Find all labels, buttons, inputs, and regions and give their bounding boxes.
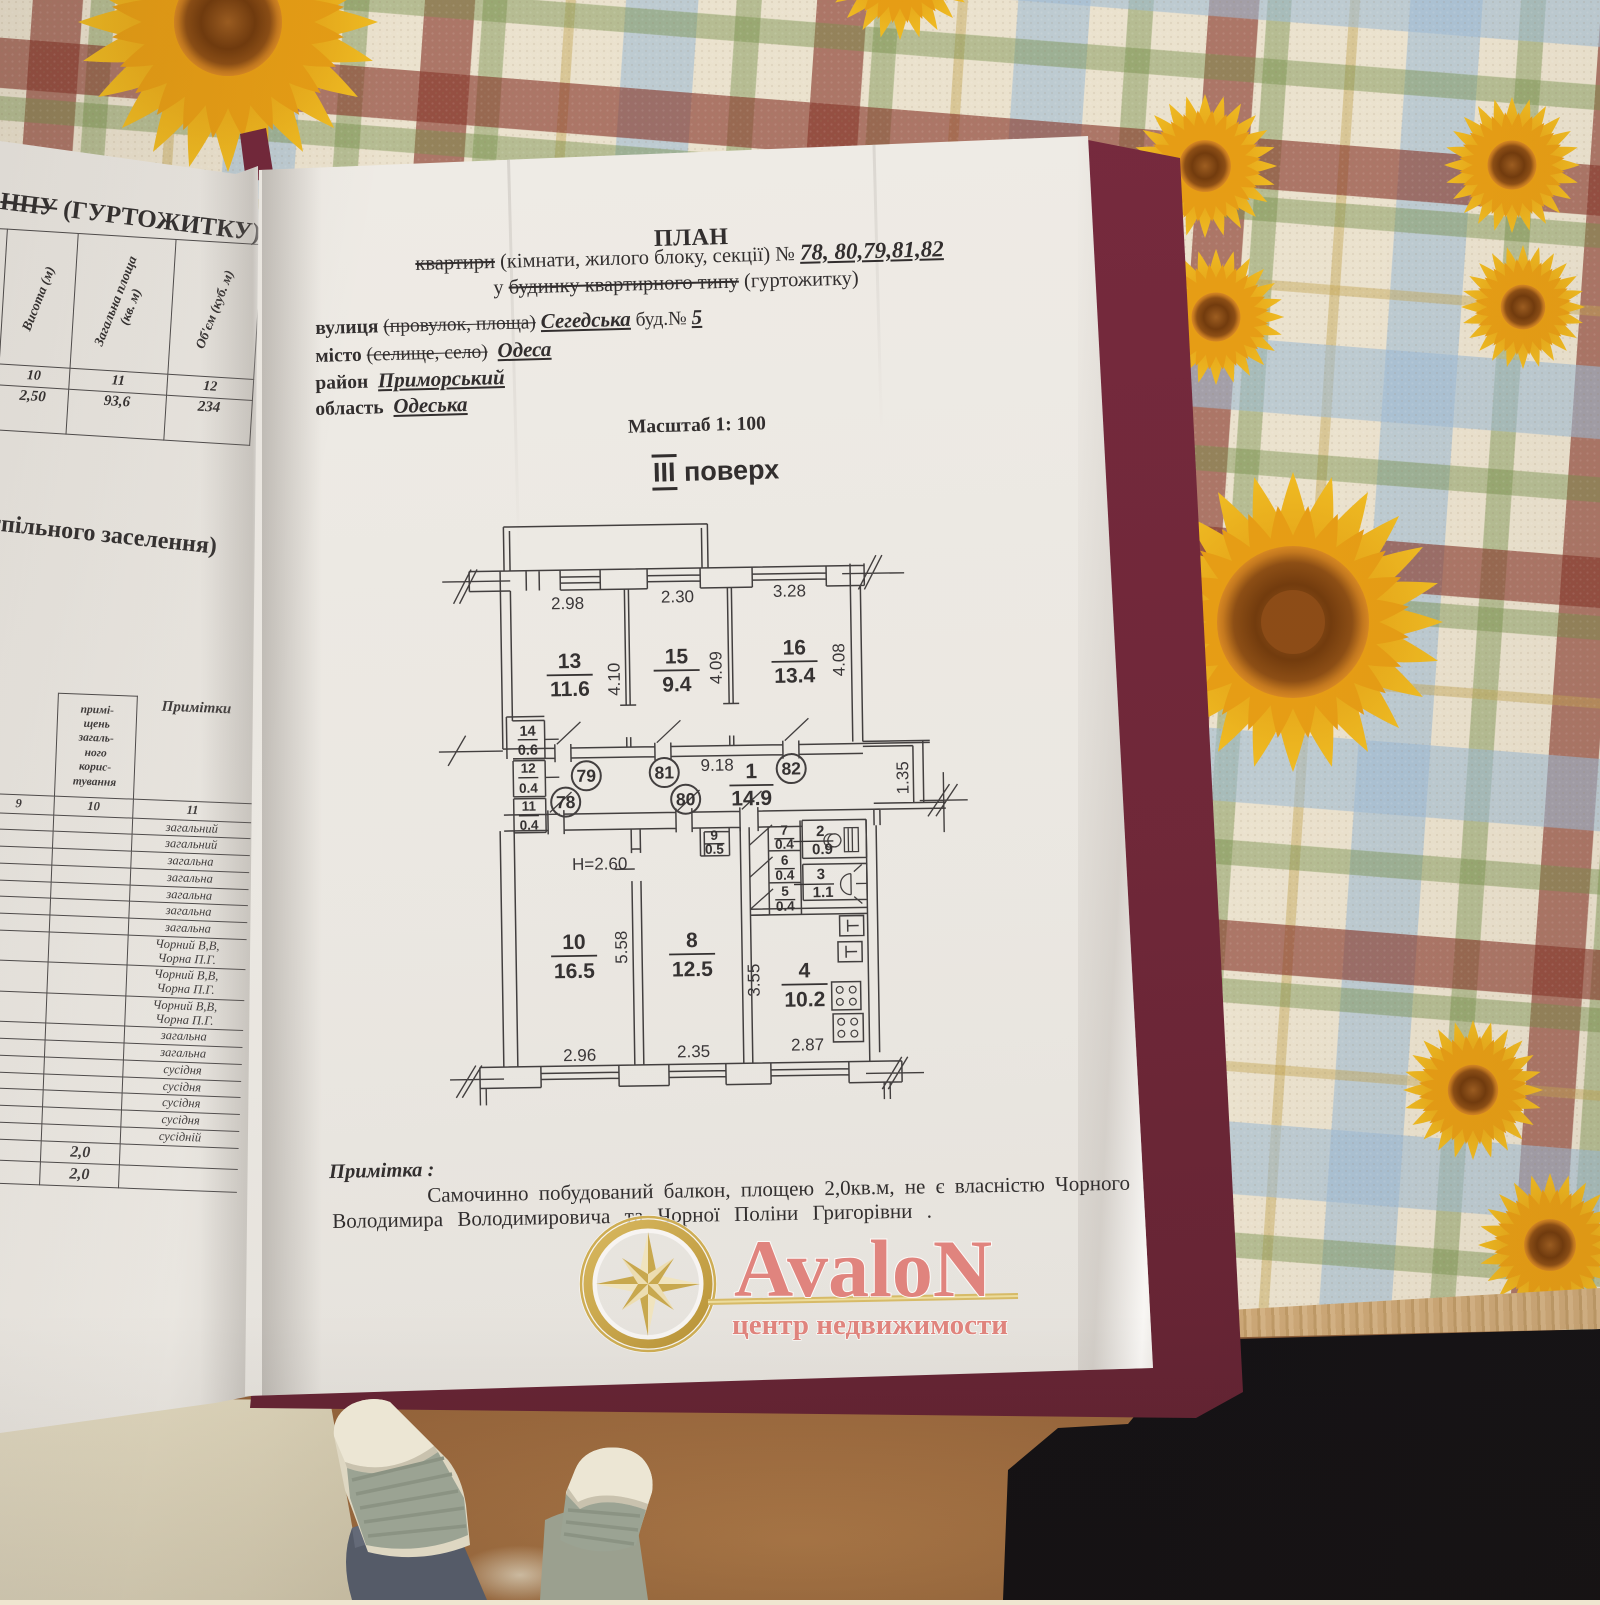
svg-text:16: 16 (782, 636, 806, 659)
svg-text:3.28: 3.28 (773, 581, 806, 601)
svg-text:H=2.60: H=2.60 (572, 854, 628, 874)
svg-text:3: 3 (817, 866, 826, 883)
svg-text:0.4: 0.4 (519, 781, 538, 796)
svg-text:78: 78 (556, 792, 576, 812)
svg-text:82: 82 (781, 758, 801, 778)
svg-text:2.35: 2.35 (677, 1042, 710, 1062)
svg-text:4.10: 4.10 (605, 663, 625, 696)
svg-text:4.09: 4.09 (706, 651, 726, 684)
svg-text:11: 11 (522, 799, 537, 814)
svg-text:0.6: 0.6 (518, 743, 538, 759)
svg-text:2.87: 2.87 (791, 1035, 824, 1055)
svg-text:13.4: 13.4 (774, 664, 816, 688)
svg-text:9: 9 (710, 828, 718, 843)
svg-text:12.5: 12.5 (672, 958, 714, 982)
svg-text:7: 7 (780, 823, 788, 838)
svg-text:16.5: 16.5 (554, 960, 596, 984)
svg-text:14: 14 (519, 724, 535, 740)
svg-text:0.4: 0.4 (776, 899, 795, 914)
svg-text:3.55: 3.55 (744, 963, 764, 996)
svg-text:AvaloN: AvaloN (734, 1223, 992, 1314)
svg-text:4: 4 (798, 959, 810, 982)
svg-text:10.2: 10.2 (784, 988, 825, 1012)
svg-text:1.35: 1.35 (893, 761, 913, 794)
svg-text:9.18: 9.18 (700, 755, 733, 775)
svg-text:0.4: 0.4 (775, 868, 794, 883)
svg-text:11.6: 11.6 (550, 678, 590, 702)
svg-text:0.4: 0.4 (520, 818, 539, 833)
svg-text:центр недвижимости: центр недвижимости (732, 1309, 1008, 1341)
svg-text:15: 15 (665, 645, 689, 668)
svg-text:1: 1 (745, 760, 757, 783)
svg-text:2.98: 2.98 (551, 594, 584, 614)
svg-text:6: 6 (781, 853, 789, 868)
svg-text:79: 79 (576, 766, 596, 786)
svg-text:4.08: 4.08 (829, 643, 849, 676)
svg-text:2.96: 2.96 (563, 1046, 596, 1066)
svg-text:0.9: 0.9 (812, 841, 833, 858)
svg-text:5.58: 5.58 (612, 931, 632, 964)
svg-text:81: 81 (654, 762, 674, 782)
svg-text:9.4: 9.4 (662, 673, 692, 696)
svg-text:2.30: 2.30 (661, 587, 694, 607)
svg-text:13: 13 (558, 650, 582, 673)
svg-text:5: 5 (781, 884, 789, 899)
svg-text:80: 80 (676, 789, 696, 809)
svg-text:8: 8 (686, 929, 698, 952)
svg-text:2: 2 (816, 823, 825, 840)
svg-text:14.9: 14.9 (731, 787, 772, 811)
svg-text:1.1: 1.1 (813, 884, 834, 901)
svg-text:10: 10 (562, 931, 586, 954)
svg-text:12: 12 (521, 761, 536, 776)
